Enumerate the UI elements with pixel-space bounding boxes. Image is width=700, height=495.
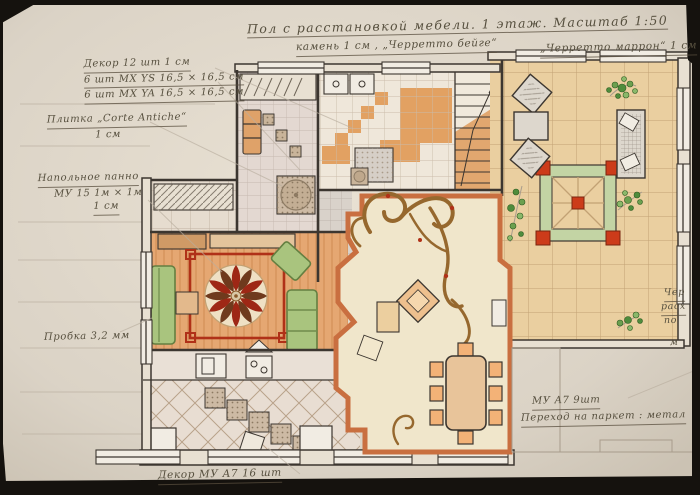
rosette-floor-medallion [205, 265, 267, 327]
cork-note: Пробка 3,2 мм [44, 329, 130, 344]
scanned-floor-plan-sheet: Пол с расстановкой мебели. 1 этаж. Масшт… [0, 0, 700, 495]
hall-rug [377, 302, 399, 332]
sink-left [324, 74, 348, 94]
bottom-decor-note: Декор МУ А7 16 шт [158, 467, 282, 485]
wicker-bench [617, 110, 645, 178]
floor-panel-note: Напольное панно МУ 15 1м × 1м 1 см [38, 170, 143, 217]
sofa-left [151, 266, 175, 344]
material-note-right: „Черретто маррон“ 1 см [540, 39, 697, 58]
side-table [514, 112, 548, 140]
room-winter-garden [490, 60, 686, 346]
right-count-note: МУ А7 9шт [532, 393, 601, 410]
room-central-hall [336, 194, 510, 452]
radiator [492, 300, 506, 326]
clipped-note-line4: м [670, 336, 679, 350]
room-entry-hall [237, 72, 318, 232]
wall-shelf-1 [158, 234, 206, 249]
coffee-table [176, 292, 198, 314]
round-mosaic-medallion [277, 176, 315, 214]
decor-note: Декор 12 шт 1 см 6 шт MX YS 16,5 × 16,5 … [84, 54, 245, 104]
sink-right [350, 74, 374, 94]
square-floor-medallion [536, 161, 620, 245]
tile-note: Плитка „Corte Antiche“ 1 см [47, 111, 188, 143]
room-bath-checker [318, 72, 455, 190]
sofa-right [287, 290, 317, 352]
room-storage [150, 180, 238, 232]
entry-bench [243, 110, 261, 154]
clipped-note-line3: по [664, 314, 677, 328]
dining-table [446, 356, 486, 430]
room-kitchen [143, 340, 360, 457]
stove [246, 356, 272, 378]
